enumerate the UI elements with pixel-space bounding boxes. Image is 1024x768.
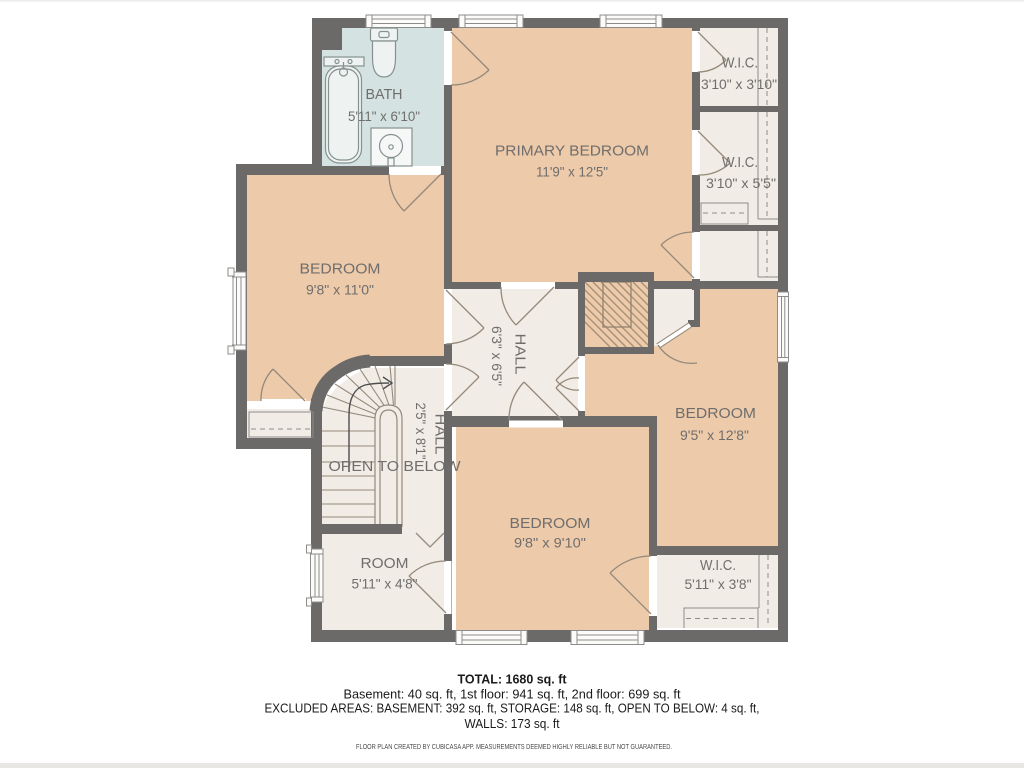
svg-text:3'10" x 3'10": 3'10" x 3'10": [701, 76, 777, 92]
svg-text:2'5" x 8'1": 2'5" x 8'1": [413, 403, 429, 460]
svg-text:BEDROOM: BEDROOM: [510, 515, 591, 532]
svg-text:11'9" x 12'5": 11'9" x 12'5": [536, 164, 608, 180]
svg-text:WALLS: 173 sq. ft: WALLS: 173 sq. ft: [465, 717, 560, 731]
svg-text:W.I.C.: W.I.C.: [722, 154, 758, 171]
svg-text:EXCLUDED AREAS: BASEMENT: 392: EXCLUDED AREAS: BASEMENT: 392 sq. ft, ST…: [265, 702, 760, 716]
svg-text:5'11" x 3'8": 5'11" x 3'8": [685, 576, 752, 592]
svg-text:Basement: 40 sq. ft, 1st floor: Basement: 40 sq. ft, 1st floor: 941 sq. …: [344, 688, 682, 702]
svg-text:9'8" x 9'10": 9'8" x 9'10": [514, 535, 586, 551]
svg-text:W.I.C.: W.I.C.: [700, 557, 736, 574]
svg-text:5'11" x 4'8": 5'11" x 4'8": [352, 576, 418, 592]
svg-text:W.I.C.: W.I.C.: [722, 55, 758, 72]
svg-text:FLOOR PLAN CREATED BY CUBICASA: FLOOR PLAN CREATED BY CUBICASA APP. MEAS…: [356, 742, 672, 751]
svg-text:9'5" x 12'8": 9'5" x 12'8": [680, 427, 749, 443]
svg-text:PRIMARY BEDROOM: PRIMARY BEDROOM: [495, 143, 649, 160]
svg-text:HALL: HALL: [432, 414, 449, 455]
svg-text:3'10" x 5'5": 3'10" x 5'5": [706, 175, 776, 191]
svg-text:BATH: BATH: [366, 86, 403, 103]
svg-text:5'11" x 6'10": 5'11" x 6'10": [348, 108, 420, 124]
svg-text:9'8" x 11'0": 9'8" x 11'0": [306, 282, 374, 298]
svg-text:HALL: HALL: [512, 334, 529, 375]
svg-text:TOTAL: 1680 sq. ft: TOTAL: 1680 sq. ft: [458, 672, 568, 687]
svg-text:6'3" x 6'5": 6'3" x 6'5": [489, 326, 505, 386]
svg-text:BEDROOM: BEDROOM: [300, 261, 381, 278]
svg-text:BEDROOM: BEDROOM: [675, 405, 756, 422]
svg-text:OPEN TO BELOW: OPEN TO BELOW: [329, 458, 462, 475]
svg-text:ROOM: ROOM: [361, 555, 409, 572]
